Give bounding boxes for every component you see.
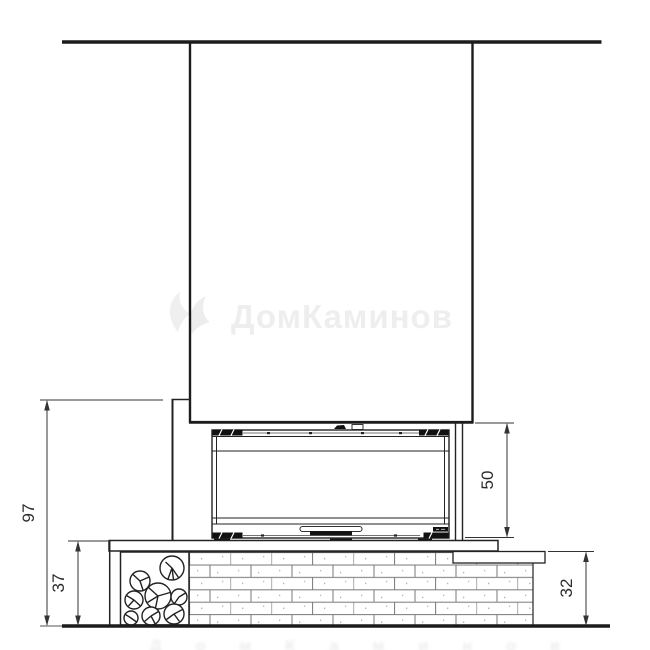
log-end: [142, 607, 160, 625]
firebox: [212, 425, 449, 542]
dim-37-arrow-up-icon: [75, 541, 81, 552]
bench-top-slab: [109, 541, 498, 552]
dim-50-arrow-up-icon: [504, 423, 510, 434]
dim-32-label: 32: [557, 579, 576, 598]
dim-32-arrow-up-icon: [583, 552, 589, 563]
log-end: [160, 556, 184, 580]
top-right-hatch: [419, 430, 449, 436]
bench-base: [109, 541, 545, 627]
dim-37-label: 37: [49, 574, 68, 593]
dim-97-arrow-up-icon: [44, 400, 50, 411]
top-left-hatch: [213, 430, 243, 436]
dimension-firebox-height: 50: [465, 423, 514, 538]
vent-slot-icon: [352, 425, 363, 430]
vent-mark-icon: [334, 425, 346, 429]
bottom-right-hatch: [424, 533, 449, 539]
dim-50-arrow-down-icon: [504, 527, 510, 538]
firebox-body: [212, 430, 449, 538]
dimension-base-height: 32: [548, 552, 594, 627]
dim-50-label: 50: [478, 471, 497, 490]
watermark-brand-text: ДомКаминов: [231, 298, 453, 335]
log-end: [164, 604, 184, 624]
dimension-bench-height: 37: [49, 541, 108, 626]
fireplace-elevation-drawing: ДомКаминов ДомКаминов: [0, 0, 650, 650]
dim-97-arrow-down-icon: [44, 616, 50, 627]
log-end: [171, 589, 187, 605]
log-end: [125, 591, 143, 609]
log-end: [124, 611, 138, 625]
door-handle-base: [310, 531, 352, 536]
log-end: [145, 583, 171, 609]
dim-97-label: 97: [19, 504, 38, 523]
chimney-hood: [189, 43, 474, 423]
bottom-left-hatch: [213, 533, 243, 539]
watermark-bottom-blur-text: ДомКаминов: [150, 638, 560, 650]
bench-step-slab: [453, 552, 545, 564]
technical-drawing-page: ДомКаминов ДомКаминов: [0, 0, 650, 650]
brand-label-plate: [433, 527, 448, 532]
door-handle: [300, 527, 362, 532]
